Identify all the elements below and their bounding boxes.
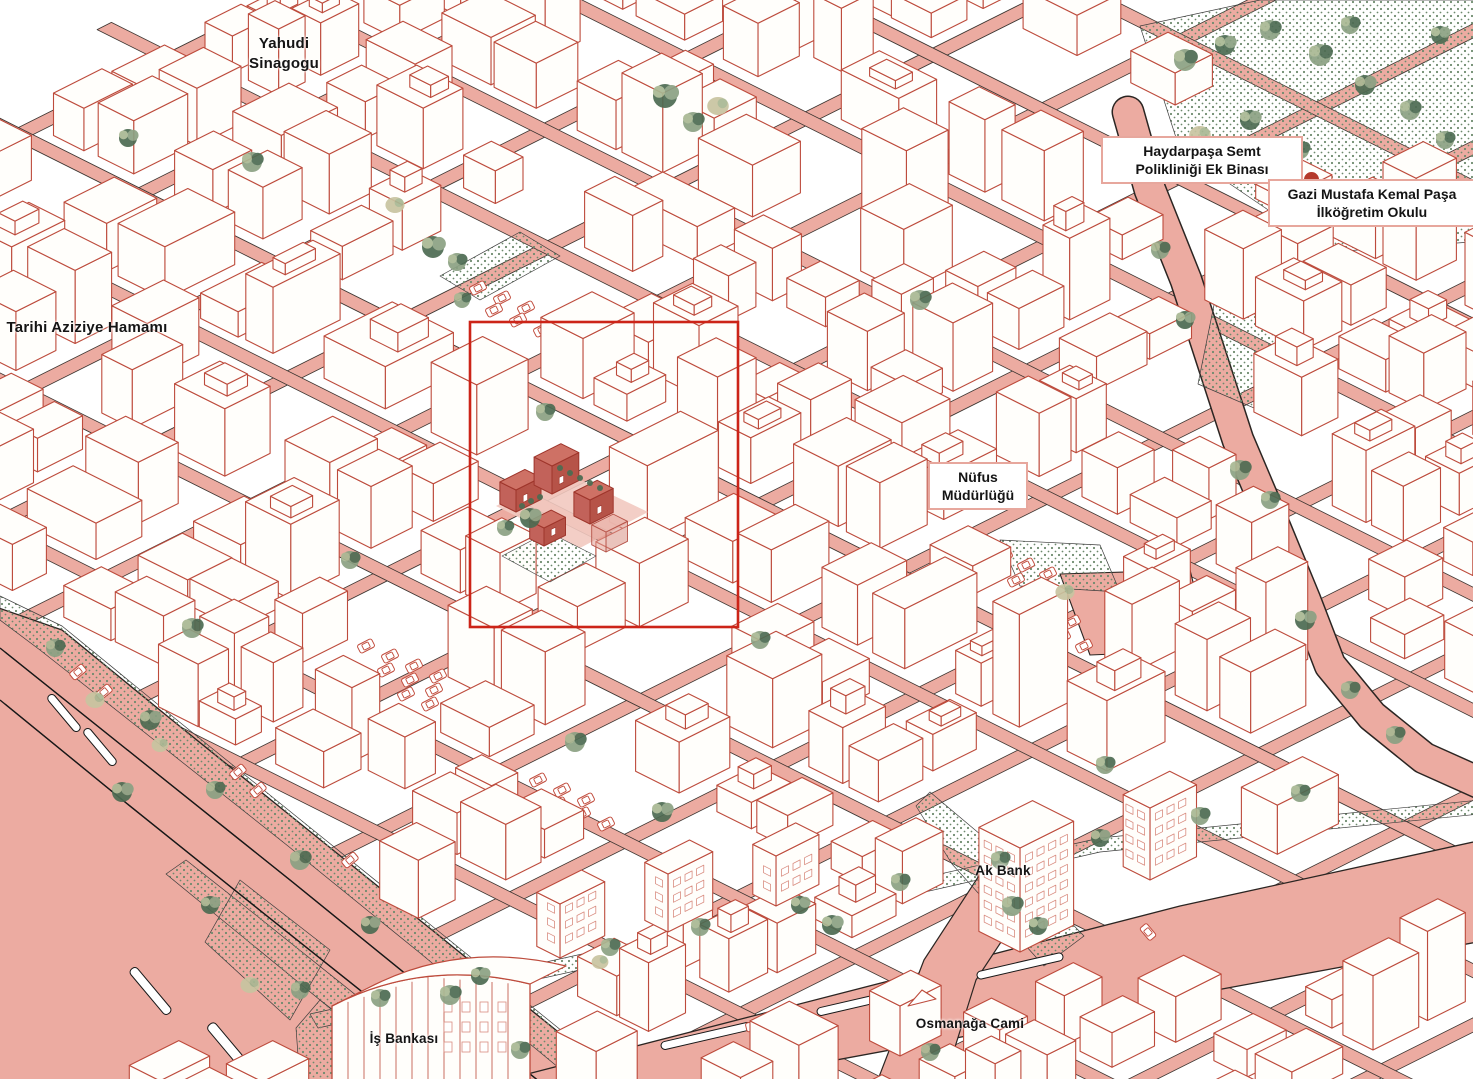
label-haydarpasa-poliklinigi: Haydarpaşa Semt Polikliniği Ek Binası (1101, 136, 1303, 184)
label-yahudi-sinagogu: Yahudi Sinagogu (229, 34, 339, 73)
label-is-bankasi: İş Bankası (349, 1030, 459, 1048)
label-gazi-mustafa-kemal-pasa-okulu: Gazi Mustafa Kemal Paşa İlköğretim Okulu (1268, 179, 1473, 227)
label-tarihi-aziziye-hamami: Tarihi Aziziye Hamamı (2, 318, 172, 338)
map-canvas: Yahudi Sinagogu Tarihi Aziziye Hamamı Ha… (0, 0, 1473, 1079)
label-osmanaga-cami: Osmanağa Cami (895, 1015, 1045, 1033)
label-ak-bank: Ak Bank (958, 862, 1048, 880)
label-nufus-mudurlugu: Nüfus Müdürlüğü (928, 462, 1028, 510)
